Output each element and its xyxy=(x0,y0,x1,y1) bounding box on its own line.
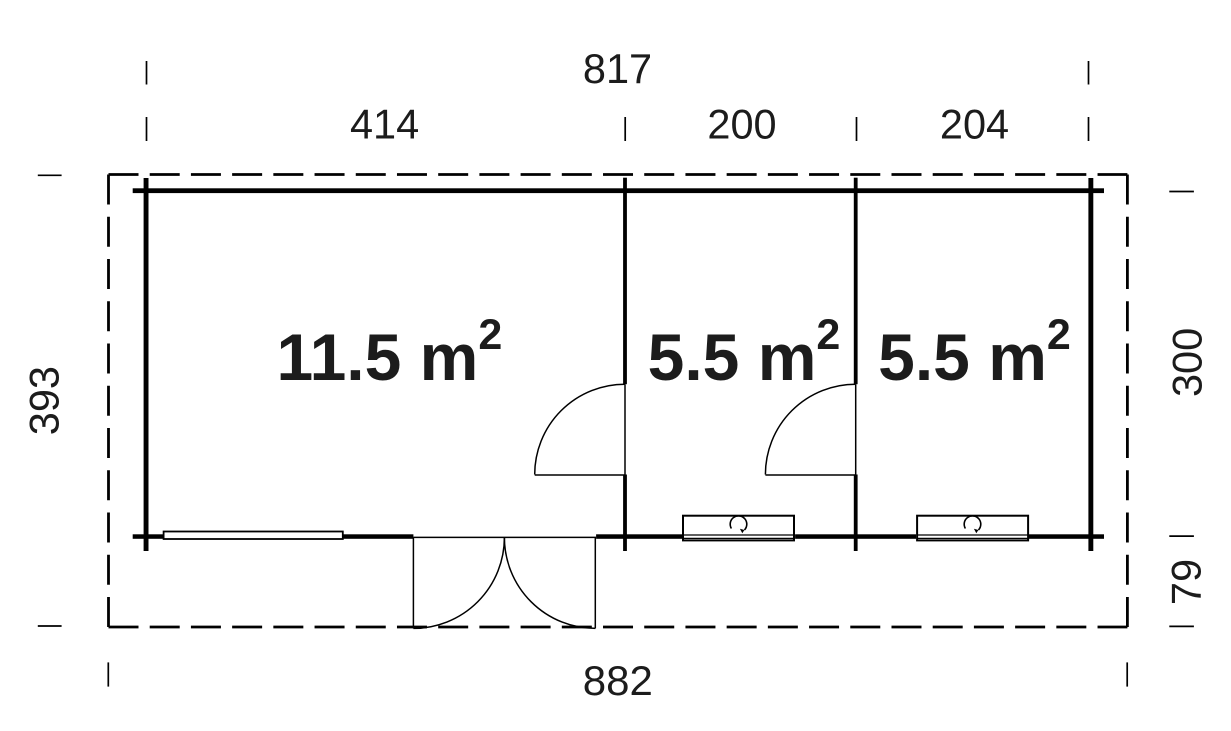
svg-text:882: 882 xyxy=(583,657,653,704)
svg-text:393: 393 xyxy=(21,366,68,435)
svg-text:204: 204 xyxy=(940,101,1009,148)
svg-text:200: 200 xyxy=(707,101,776,148)
svg-text:5.5 m2: 5.5 m2 xyxy=(878,311,1071,394)
svg-text:414: 414 xyxy=(350,101,419,148)
svg-text:817: 817 xyxy=(583,45,652,92)
svg-text:5.5 m2: 5.5 m2 xyxy=(648,311,841,394)
svg-text:300: 300 xyxy=(1164,328,1211,397)
svg-text:11.5 m2: 11.5 m2 xyxy=(277,311,503,394)
svg-text:79: 79 xyxy=(1163,559,1210,605)
